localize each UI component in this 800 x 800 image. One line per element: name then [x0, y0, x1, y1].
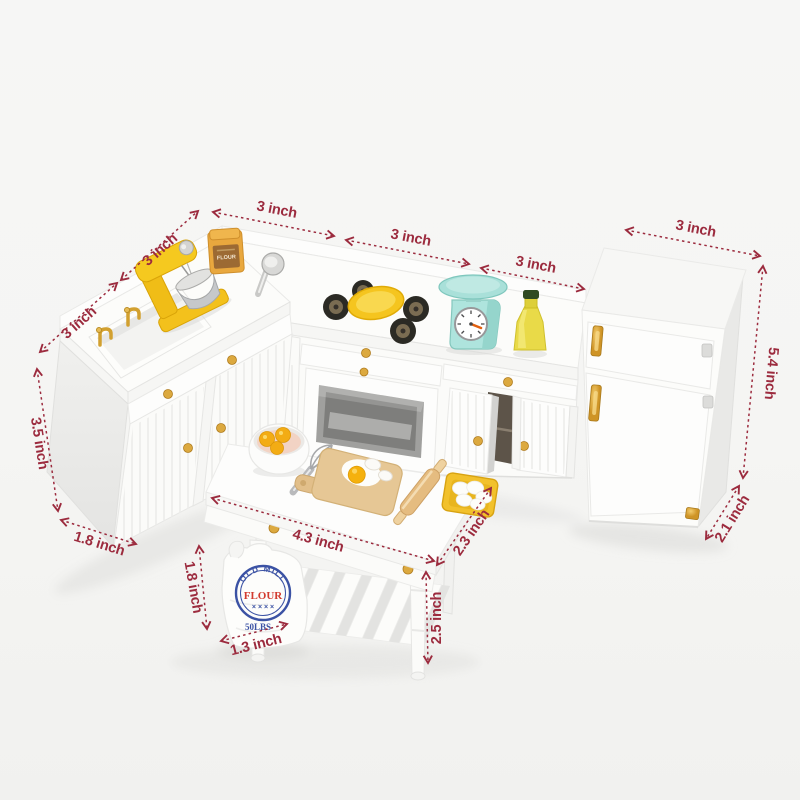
fridge-hinge-mid: [703, 396, 713, 408]
bag-stars: × × × ×: [252, 604, 274, 611]
flour-jar: FLOUR: [207, 228, 244, 274]
svg-text:3 inch: 3 inch: [674, 217, 717, 240]
mixing-bowl: [249, 424, 309, 477]
svg-text:3 inch: 3 inch: [514, 253, 557, 276]
svg-text:3 inch: 3 inch: [255, 198, 298, 221]
svg-text:3 inch: 3 inch: [389, 226, 432, 249]
refrigerator: [582, 248, 746, 527]
dim-flour-bag-height: 1.8 inch: [181, 546, 207, 629]
flour-bag: OLD MILL FLOUR × × × × 50LBS: [222, 541, 307, 648]
bag-flour-label: FLOUR: [244, 590, 284, 602]
fridge-hinge-bottom: [685, 507, 699, 520]
svg-text:5.4 inch: 5.4 inch: [761, 347, 782, 401]
freezer-handle: [591, 326, 604, 357]
dim-fridge-width: 3 inch: [626, 217, 760, 256]
bottle-cap: [523, 290, 539, 299]
svg-text:2.5 inch: 2.5 inch: [429, 592, 445, 644]
bag-weight: 50LBS: [245, 622, 271, 632]
dim-fridge-height: 5.4 inch: [743, 266, 781, 478]
product-image: FLOUR: [0, 0, 800, 800]
svg-text:3.5 inch: 3.5 inch: [27, 416, 51, 470]
kitchen-set-illustration: FLOUR: [0, 0, 800, 800]
fridge-hinge-top: [702, 344, 712, 357]
egg-basket: [441, 472, 498, 518]
scale-dial: [455, 308, 487, 340]
bag-knot: [229, 541, 244, 558]
svg-text:1.8 inch: 1.8 inch: [181, 560, 206, 614]
fridge-door: [586, 373, 710, 516]
